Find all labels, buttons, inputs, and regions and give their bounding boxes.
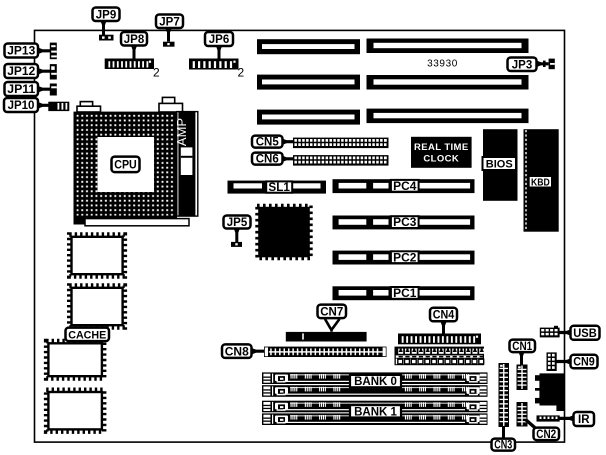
- svg-text:PC2: PC2: [393, 252, 416, 264]
- svg-text:BANK 1: BANK 1: [354, 406, 397, 418]
- svg-text:CPU: CPU: [114, 158, 137, 172]
- svg-text:PC4: PC4: [393, 181, 417, 193]
- svg-text:CN5: CN5: [256, 137, 280, 149]
- svg-text:JP9: JP9: [96, 9, 116, 21]
- svg-text:CN1: CN1: [512, 341, 533, 353]
- svg-text:BIOS: BIOS: [486, 158, 513, 170]
- svg-text:CN3: CN3: [494, 440, 512, 452]
- svg-text:33930: 33930: [427, 59, 458, 70]
- svg-text:PC1: PC1: [393, 288, 417, 300]
- svg-text:JP5: JP5: [227, 217, 248, 229]
- svg-text:JP11: JP11: [7, 84, 36, 96]
- svg-text:CN6: CN6: [256, 154, 279, 166]
- svg-text:2: 2: [153, 66, 160, 80]
- svg-text:KBD: KBD: [531, 177, 550, 189]
- svg-text:CN9: CN9: [573, 357, 595, 369]
- svg-text:JP13: JP13: [7, 46, 35, 58]
- svg-text:JP8: JP8: [124, 34, 145, 46]
- svg-text:CACHE: CACHE: [68, 329, 106, 341]
- svg-text:CN4: CN4: [433, 310, 455, 322]
- svg-text:JP12: JP12: [7, 66, 35, 78]
- svg-text:2: 2: [238, 66, 245, 80]
- svg-text:CN7: CN7: [320, 306, 343, 318]
- svg-text:BANK 0: BANK 0: [354, 376, 397, 388]
- svg-text:JP3: JP3: [512, 59, 532, 71]
- svg-text:JP7: JP7: [159, 16, 179, 28]
- svg-text:REAL TIME: REAL TIME: [414, 142, 469, 153]
- svg-text:CN2: CN2: [536, 429, 556, 441]
- svg-text:AMP: AMP: [174, 118, 189, 146]
- svg-text:CN8: CN8: [225, 346, 250, 358]
- svg-text:PC3: PC3: [393, 217, 416, 229]
- svg-text:JP6: JP6: [209, 34, 229, 46]
- svg-text:SL1: SL1: [268, 182, 290, 194]
- svg-text:IR: IR: [578, 414, 590, 426]
- svg-text:USB: USB: [573, 328, 597, 340]
- svg-text:CLOCK: CLOCK: [423, 153, 459, 164]
- svg-text:JP10: JP10: [8, 100, 35, 112]
